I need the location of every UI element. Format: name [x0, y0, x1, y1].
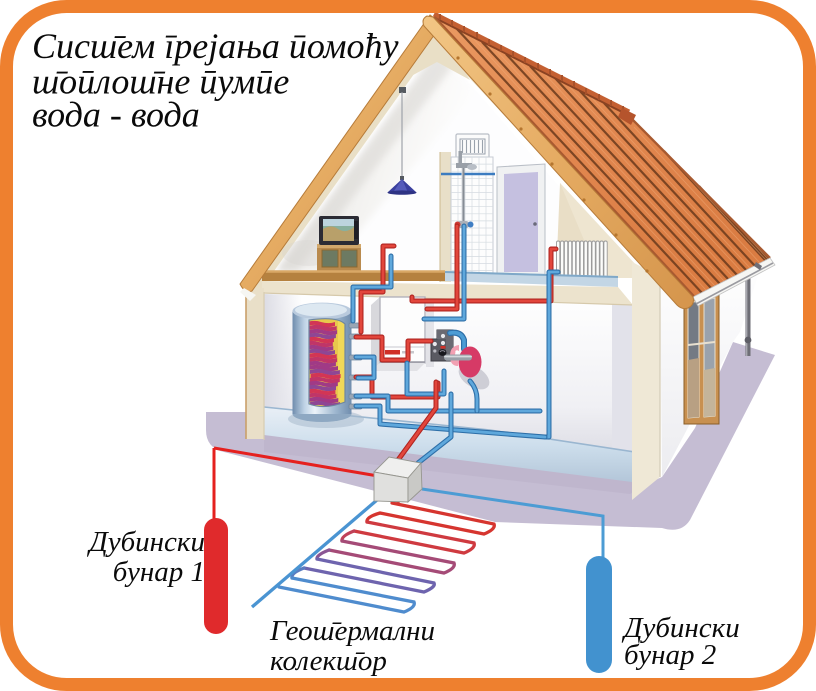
svg-text:Дубински: Дубински — [86, 526, 205, 558]
svg-text:колекш̄ор: колекш̄ор — [270, 645, 387, 677]
svg-text:Геош̄ермални: Геош̄ермални — [269, 615, 435, 647]
svg-text:Сисш̄ем īрејања ӣомоћу: Сисш̄ем īрејања ӣомоћу — [32, 26, 398, 66]
svg-text:бунар 1: бунар 1 — [113, 556, 205, 588]
svg-text:вода - вода: вода - вода — [32, 95, 200, 135]
svg-text:бунар 2: бунар 2 — [624, 639, 716, 671]
